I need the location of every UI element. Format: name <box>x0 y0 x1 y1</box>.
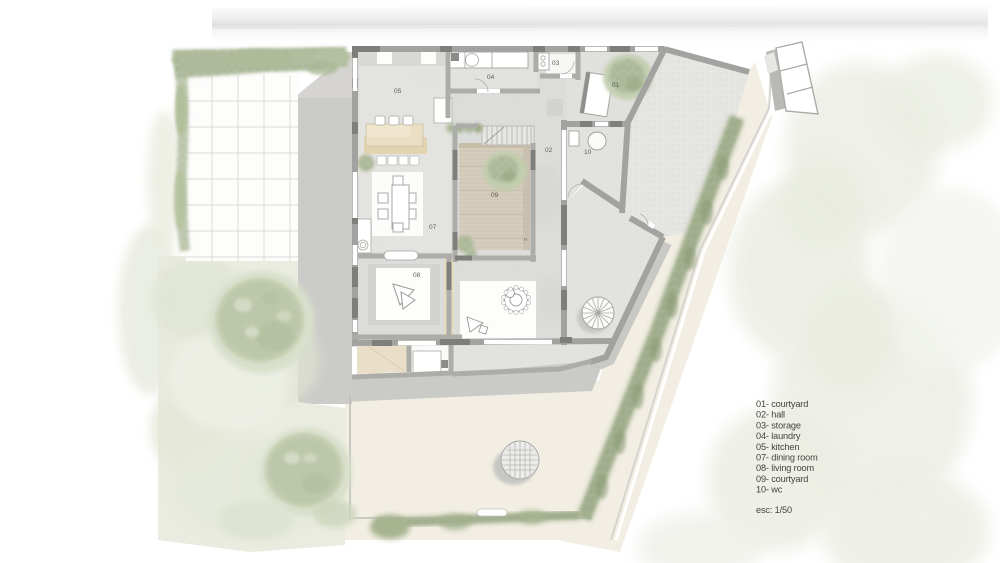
svg-text:H: H <box>524 237 527 242</box>
svg-text:08- living room: 08- living room <box>756 463 814 473</box>
svg-text:07: 07 <box>429 224 437 231</box>
svg-text:04: 04 <box>487 74 495 81</box>
svg-text:09: 09 <box>491 192 499 199</box>
svg-text:03- storage: 03- storage <box>756 420 801 430</box>
svg-text:09- courtyard: 09- courtyard <box>756 474 808 484</box>
svg-text:02: 02 <box>545 147 553 154</box>
svg-text:05- kitchen: 05- kitchen <box>756 442 799 452</box>
svg-text:01: 01 <box>612 82 620 89</box>
svg-text:03: 03 <box>552 60 560 67</box>
svg-text:10: 10 <box>584 149 592 156</box>
svg-text:02- hall: 02- hall <box>756 410 785 420</box>
svg-text:08: 08 <box>413 272 421 279</box>
svg-text:07- dining room: 07- dining room <box>756 453 818 463</box>
svg-text:05: 05 <box>394 88 402 95</box>
svg-text:04- laundry: 04- laundry <box>756 431 801 441</box>
svg-text:01- courtyard: 01- courtyard <box>756 399 808 409</box>
svg-text:esc: 1/50: esc: 1/50 <box>756 505 792 515</box>
svg-text:10- wc: 10- wc <box>756 485 783 495</box>
